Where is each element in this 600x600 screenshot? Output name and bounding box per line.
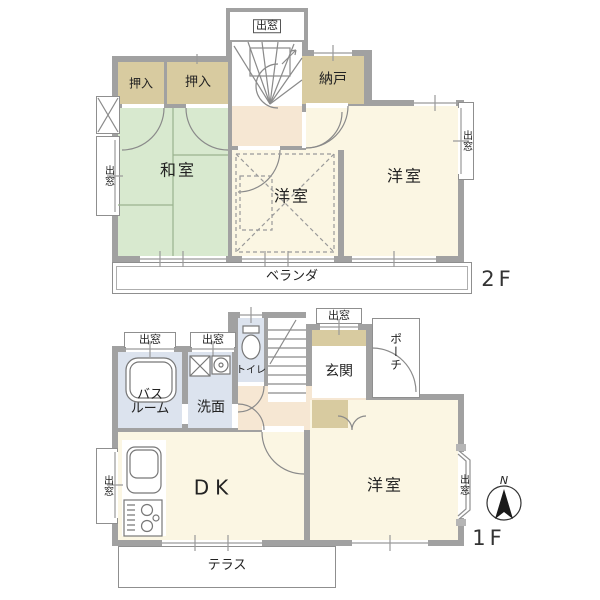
f1-genkan-upper bbox=[312, 330, 366, 346]
f2-veranda-label: ベランダ bbox=[266, 270, 318, 284]
f1-porch-label: ポーチ bbox=[388, 333, 405, 372]
f1-senmen-label: 洗面 bbox=[197, 401, 225, 416]
f1-bay-left-label: 出窓 bbox=[100, 475, 115, 497]
f2-hall bbox=[232, 106, 302, 146]
f2-window-right bbox=[352, 256, 436, 262]
f2-oshiire-right-label: 押入 bbox=[185, 76, 211, 90]
f1-bathroom-label: バス ルーム bbox=[131, 388, 170, 415]
f2-bay-left-label: 出窓 bbox=[101, 165, 116, 187]
f1-dk-label: DK bbox=[194, 478, 235, 499]
floor-plan: 出窓 押入 押入 納戸 和室 洋室 洋室 ベランダ 出窓 出窓 2F 出窓 出窓… bbox=[0, 0, 600, 600]
f1-genkan-label: 玄関 bbox=[325, 365, 353, 380]
f1-toilet-label: トイレ bbox=[236, 366, 266, 377]
f1-bathroom-label-line2: ルーム bbox=[131, 401, 170, 416]
f2-bay-right-label: 出窓 bbox=[459, 130, 474, 152]
f2-door-gap-hall-center bbox=[238, 146, 280, 150]
f1-door-gap-dk bbox=[262, 426, 304, 432]
f2-stairwell bbox=[232, 42, 302, 106]
f1-terrace-label: テラス bbox=[208, 559, 247, 573]
f1-genkan-step bbox=[312, 400, 348, 428]
f2-shaft bbox=[96, 96, 120, 134]
f2-washitsu bbox=[118, 108, 228, 256]
f1-kitchen-counter bbox=[122, 440, 166, 536]
f2-door-gap-nando bbox=[306, 103, 348, 108]
f1-window-genkan bbox=[320, 324, 358, 330]
f2-door-gap-washitsu-r bbox=[186, 104, 228, 108]
compass-north-label: N bbox=[500, 475, 508, 487]
f1-window-bath-top bbox=[126, 346, 174, 352]
f2-yoshitsu-right-a bbox=[306, 106, 458, 150]
f2-top-bay-label: 出窓 bbox=[253, 19, 281, 33]
f1-window-senmen-top bbox=[192, 346, 234, 352]
f2-window-nando bbox=[314, 50, 352, 56]
f1-yoshitsu-label: 洋室 bbox=[367, 478, 403, 495]
f2-floor-label: 2F bbox=[481, 268, 514, 290]
f1-bath-bay-label: 出窓 bbox=[139, 334, 161, 346]
f1-stairs bbox=[268, 318, 306, 402]
f2-door-gap-hall-right bbox=[302, 112, 306, 148]
f2-yoshitsu-right-label: 洋室 bbox=[387, 169, 423, 186]
f1-window-toilet bbox=[240, 312, 262, 318]
f2-yoshitsu-center-label: 洋室 bbox=[274, 189, 310, 206]
compass-icon bbox=[487, 486, 521, 520]
f2-door-gap-washitsu-l bbox=[122, 104, 164, 108]
f1-bay-right-label: 出窓 bbox=[456, 474, 471, 496]
f1-floor-label: 1F bbox=[472, 527, 505, 549]
f1-window-yoshitsu bbox=[352, 540, 428, 546]
f2-window-top-right bbox=[414, 100, 456, 106]
f1-genkan-bay-label: 出窓 bbox=[328, 310, 350, 322]
f2-oshiire-left-label: 押入 bbox=[129, 78, 153, 91]
f1-senmen-bay-label: 出窓 bbox=[202, 334, 224, 346]
f2-window-washitsu bbox=[140, 256, 226, 262]
f2-washitsu-label: 和室 bbox=[160, 163, 196, 180]
f1-door-gap-toilet bbox=[238, 382, 264, 386]
f1-door-gap-senmen bbox=[232, 404, 238, 428]
f2-window-center bbox=[242, 256, 334, 262]
f1-senmen bbox=[188, 352, 232, 428]
f2-nando-label: 納戸 bbox=[319, 73, 347, 88]
f1-door-gap-bath bbox=[182, 404, 188, 424]
f1-window-dk bbox=[162, 540, 262, 546]
